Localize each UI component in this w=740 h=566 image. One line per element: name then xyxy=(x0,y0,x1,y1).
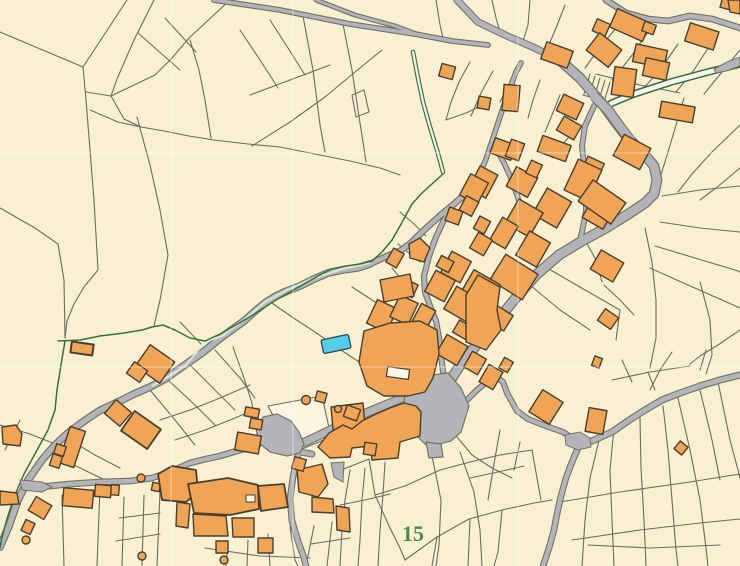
svg-text:15: 15 xyxy=(402,521,424,546)
